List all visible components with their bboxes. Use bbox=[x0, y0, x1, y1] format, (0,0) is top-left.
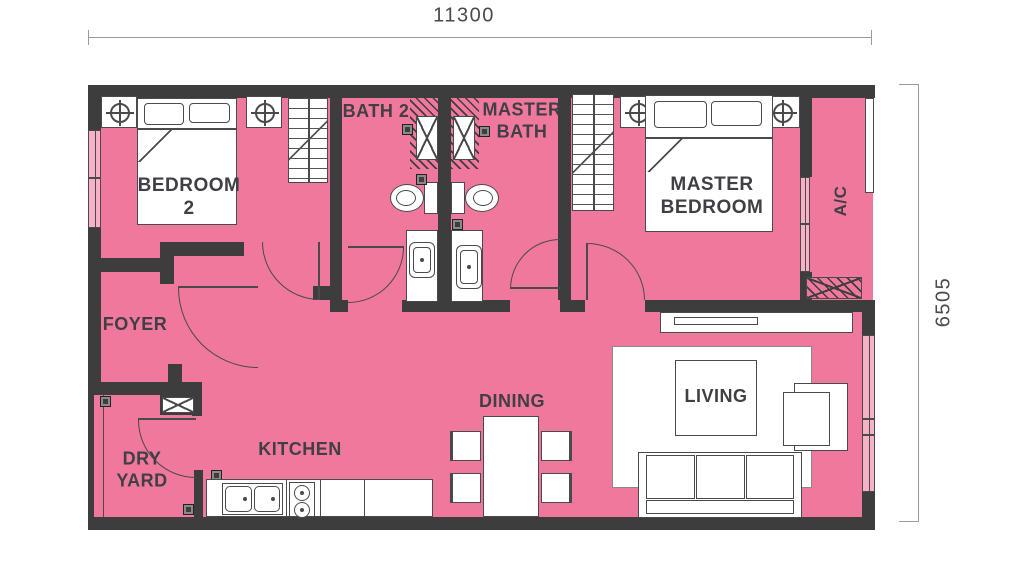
wardrobe bbox=[288, 98, 328, 183]
room-label-bath2: BATH 2 bbox=[343, 101, 410, 123]
room-label-master-bedroom: MASTER BEDROOM bbox=[661, 174, 764, 220]
wall bbox=[645, 300, 875, 312]
dimension-width-label: 11300 bbox=[433, 5, 495, 28]
dry-yard-screen-line bbox=[103, 395, 104, 517]
room-label-line: 2 bbox=[183, 198, 194, 219]
room-label-line: YARD bbox=[116, 470, 167, 490]
wall bbox=[330, 85, 342, 300]
wall bbox=[88, 96, 101, 130]
basin-drain-dot bbox=[420, 258, 424, 262]
tv bbox=[674, 317, 758, 325]
wall bbox=[160, 256, 174, 284]
dimension-tick bbox=[871, 30, 872, 45]
dimension-height-line bbox=[918, 84, 919, 522]
dimension-tick bbox=[899, 84, 919, 85]
wall bbox=[160, 242, 244, 256]
floorplan-canvas: 11300 6505 bbox=[0, 0, 1024, 576]
wall bbox=[88, 258, 168, 272]
dimension-width-line bbox=[88, 37, 872, 38]
sofa-cushion bbox=[696, 455, 745, 499]
sink-drain-dot bbox=[271, 497, 275, 501]
duct-icon bbox=[162, 397, 194, 413]
wall bbox=[88, 228, 101, 382]
sink-basin bbox=[254, 486, 280, 512]
wall bbox=[88, 382, 94, 522]
toilet-bowl-inner bbox=[473, 190, 493, 206]
floor-drain-icon bbox=[452, 219, 463, 230]
shower-tray bbox=[453, 116, 475, 160]
counter-divider bbox=[364, 480, 365, 516]
room-label-foyer: FOYER bbox=[103, 314, 168, 336]
shower-tray bbox=[416, 116, 438, 160]
dimension-tick bbox=[88, 30, 89, 45]
toilet-bowl-inner bbox=[396, 190, 416, 206]
wall bbox=[330, 300, 348, 312]
room-label-dining: DINING bbox=[479, 391, 545, 413]
window bbox=[862, 335, 875, 492]
wall bbox=[438, 85, 451, 312]
floor-drain-icon bbox=[402, 124, 413, 135]
window bbox=[88, 130, 101, 228]
column-marker-icon bbox=[101, 96, 137, 128]
sofa-cushion bbox=[746, 455, 794, 499]
wall bbox=[800, 85, 812, 177]
floor-drain-icon bbox=[183, 504, 194, 515]
room-label-dry-yard: DRY YARD bbox=[116, 448, 167, 491]
sink-drain-dot bbox=[243, 497, 247, 501]
ac-compressor-hatch bbox=[806, 277, 862, 299]
dining-table bbox=[483, 416, 539, 517]
toilet-tank bbox=[424, 182, 438, 214]
counter-divider bbox=[320, 480, 321, 516]
blanket-fold bbox=[138, 130, 172, 162]
room-label-kitchen: KITCHEN bbox=[258, 439, 342, 461]
room-label-line: BEDROOM bbox=[138, 175, 241, 196]
room-label-living: LIVING bbox=[684, 386, 747, 408]
dining-chair bbox=[450, 473, 481, 503]
room-label-bedroom2: BEDROOM 2 bbox=[138, 175, 241, 221]
pillow bbox=[189, 103, 230, 123]
burner-dot bbox=[300, 508, 304, 512]
floor-drain-icon bbox=[416, 174, 427, 185]
counter-divider bbox=[286, 480, 287, 516]
sofa-front-edge bbox=[646, 500, 794, 514]
toilet-tank bbox=[451, 182, 465, 214]
basin-drain-dot bbox=[467, 265, 471, 269]
window-mullion bbox=[862, 418, 875, 420]
room-label-line: BEDROOM bbox=[661, 197, 764, 218]
room-label-line: MASTER bbox=[483, 99, 562, 119]
room-label-line: DRY bbox=[123, 448, 162, 468]
room-label-line: BATH bbox=[497, 121, 548, 141]
window-mullion bbox=[88, 177, 101, 179]
dimension-tick bbox=[899, 521, 919, 522]
dining-chair bbox=[450, 431, 481, 461]
dining-chair bbox=[541, 431, 572, 461]
armchair-seat bbox=[783, 392, 830, 446]
wall bbox=[862, 492, 875, 517]
wall bbox=[560, 300, 585, 312]
wall bbox=[88, 517, 875, 530]
dimension-height-label: 6505 bbox=[933, 277, 956, 328]
wall bbox=[168, 364, 182, 382]
wardrobe bbox=[572, 94, 614, 211]
floor-drain-icon bbox=[100, 396, 111, 407]
ac-ledge-parapet bbox=[865, 98, 874, 193]
burner-dot bbox=[300, 491, 304, 495]
blanket-fold bbox=[647, 139, 683, 172]
room-label-master-bath: MASTER BATH bbox=[483, 99, 562, 142]
pillow bbox=[144, 103, 184, 125]
sink-basin bbox=[225, 486, 252, 512]
dining-chair bbox=[541, 473, 572, 503]
window-mullion bbox=[862, 434, 875, 436]
pillow bbox=[711, 101, 762, 126]
column-marker-icon bbox=[246, 96, 282, 128]
room-label-ac: A/C bbox=[831, 186, 851, 217]
sofa-cushion bbox=[646, 455, 695, 499]
room-label-line: MASTER bbox=[670, 174, 753, 195]
window-mullion bbox=[800, 223, 810, 225]
pillow bbox=[654, 101, 707, 128]
